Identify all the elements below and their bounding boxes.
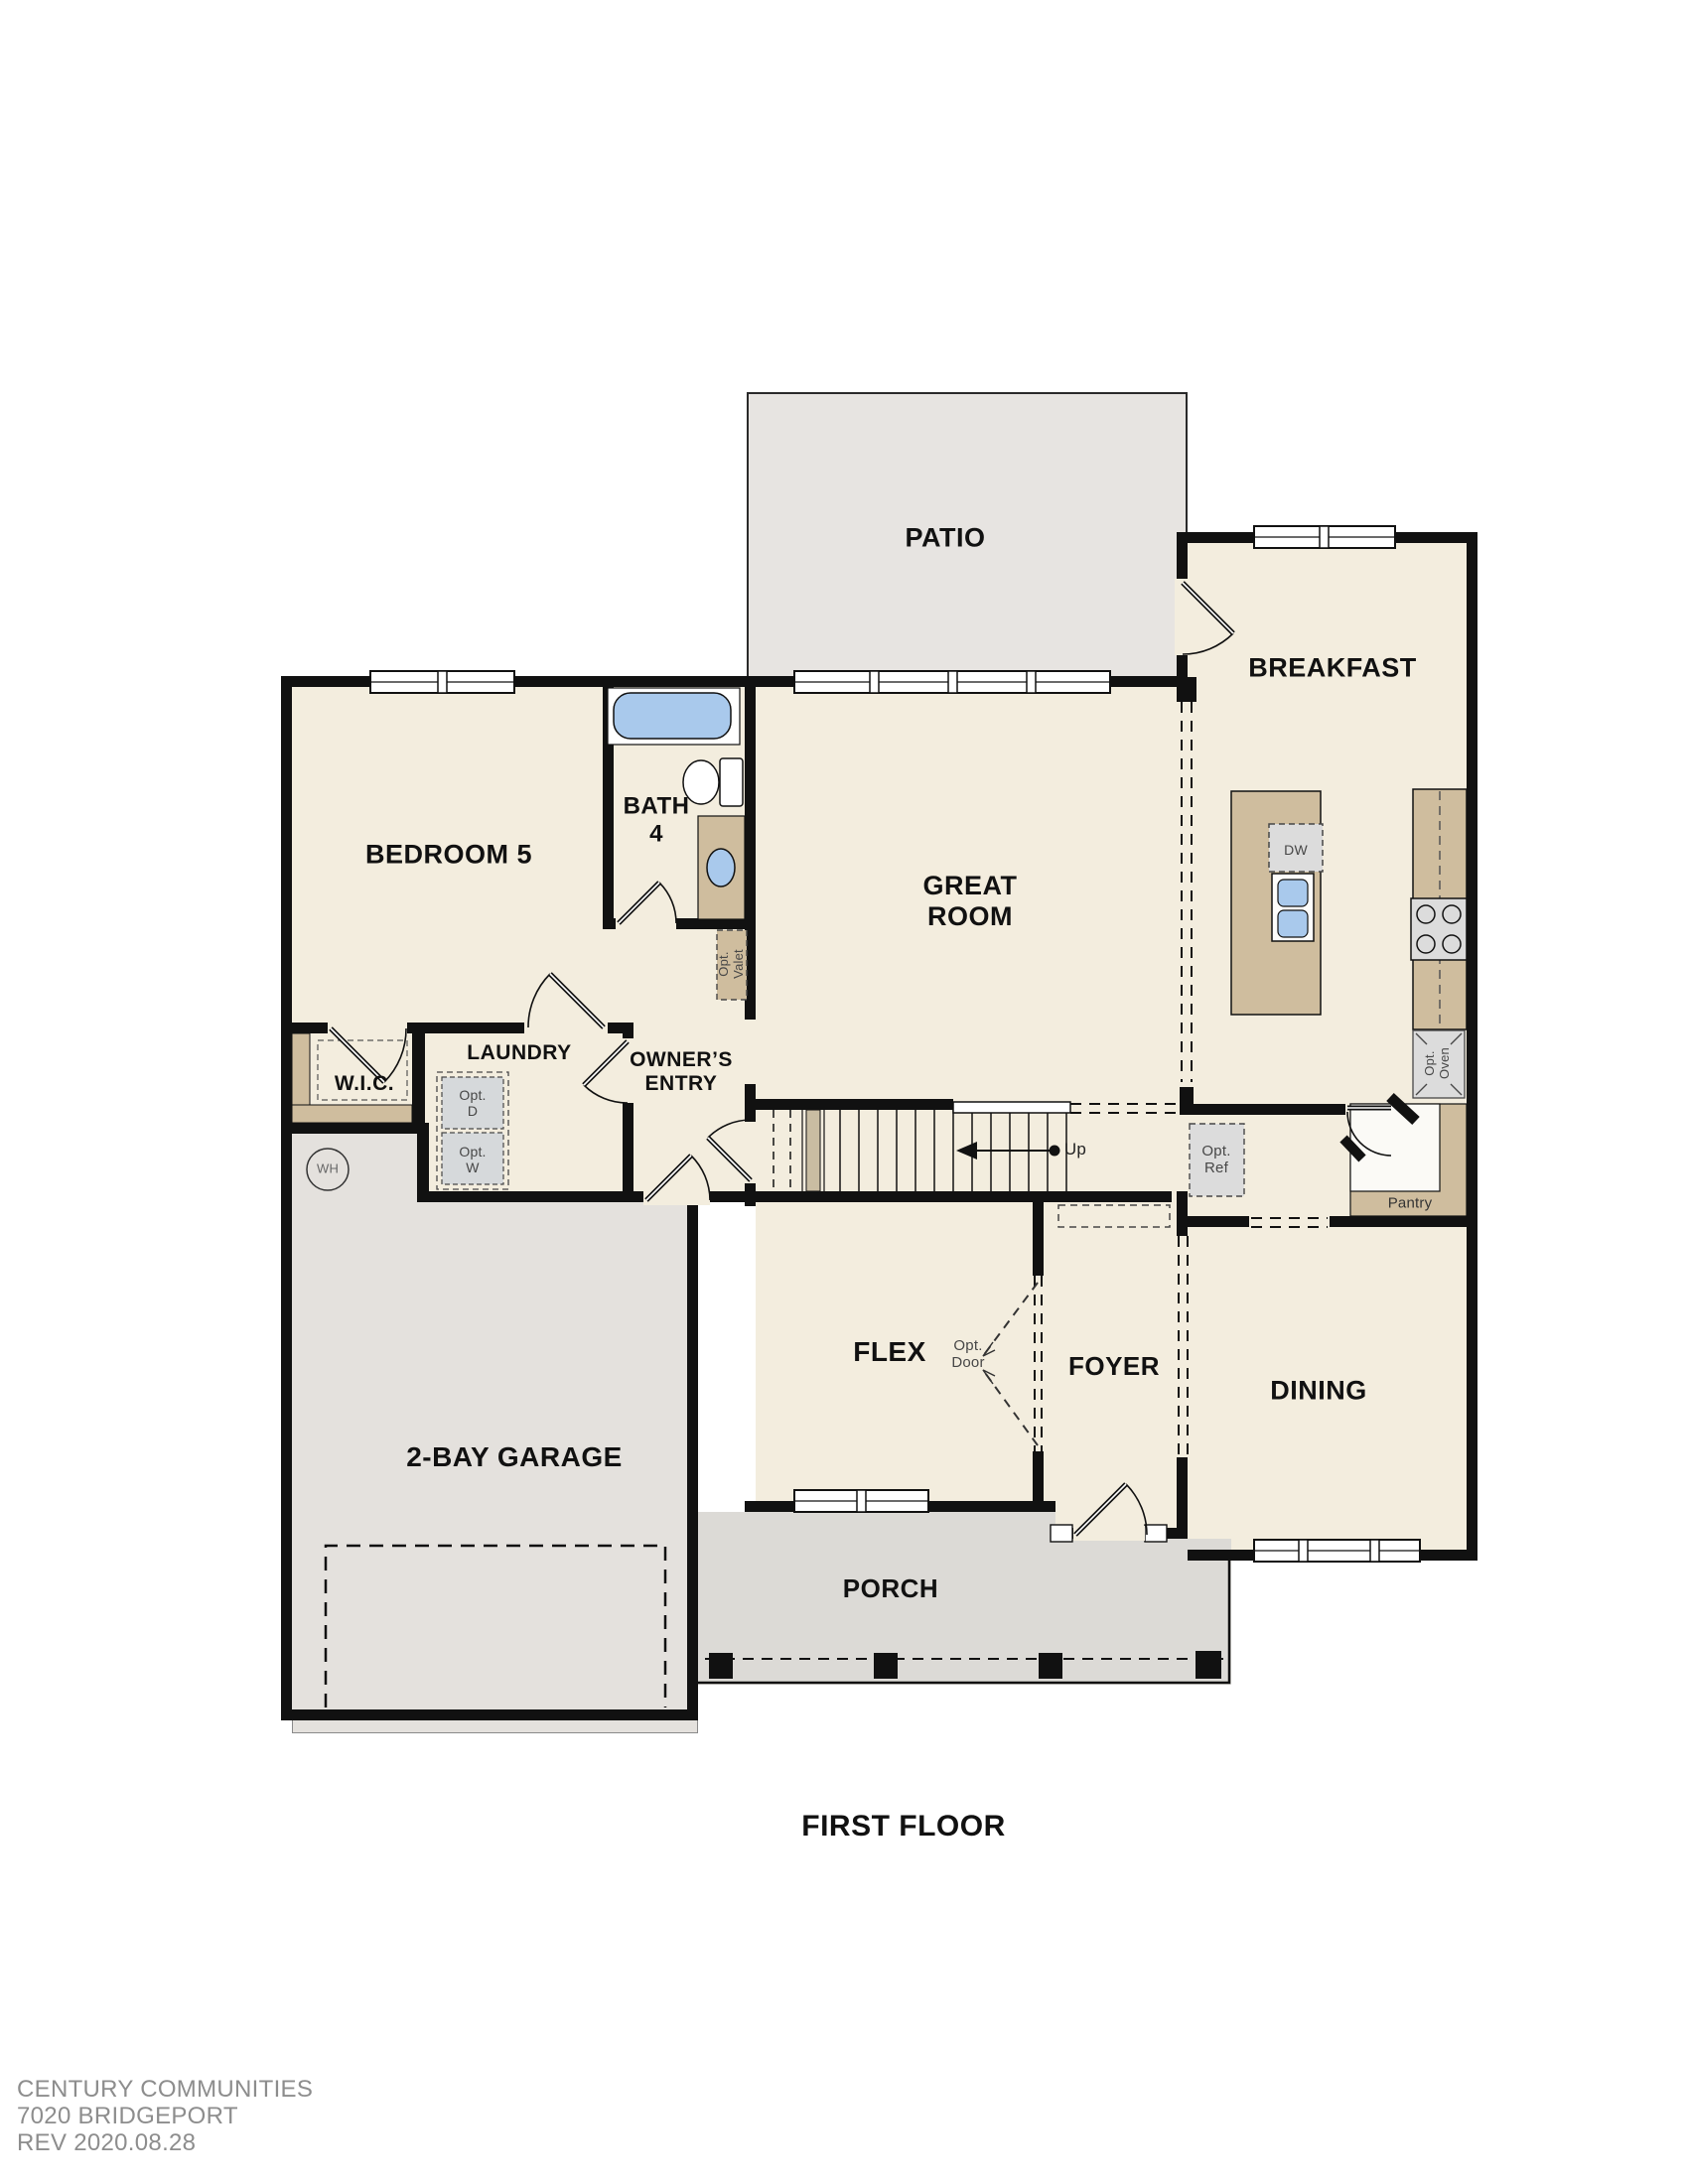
wall-wic-bottom — [281, 1123, 429, 1134]
opening-flex-right — [1031, 1276, 1046, 1451]
wall-wic-right — [412, 1033, 425, 1134]
wall-bedroom-bottom — [281, 1023, 633, 1033]
wall-rail-end — [1180, 1087, 1194, 1107]
label-opt-door: Opt. Door — [951, 1337, 984, 1372]
wall-stair-bottom — [756, 1191, 1172, 1202]
wall-entry-bottom — [417, 1191, 756, 1202]
label-up: Up — [1064, 1140, 1086, 1160]
wall-kitchen-bottom — [1180, 1104, 1345, 1115]
wall-foyer-right-bottom — [1177, 1457, 1188, 1539]
label-wh: WH — [317, 1162, 339, 1177]
label-foyer: FOYER — [1068, 1352, 1160, 1382]
wall-right — [1467, 532, 1477, 1561]
label-great-room: GREAT ROOM — [923, 871, 1018, 932]
label-pantry: Pantry — [1388, 1194, 1433, 1211]
plan-footer: CENTURY COMMUNITIES 7020 BRIDGEPORT REV … — [17, 2076, 313, 2156]
wall-breakfast-corner — [1177, 677, 1196, 702]
label-opt-d: Opt. D — [459, 1087, 486, 1119]
wall-garage-bottom — [281, 1709, 698, 1720]
wall-greatroom-left — [745, 687, 756, 1206]
label-porch: PORCH — [843, 1574, 938, 1604]
label-dw: DW — [1284, 842, 1308, 858]
label-opt-ref: Opt. Ref — [1201, 1143, 1230, 1177]
wall-bath-bottom — [603, 918, 756, 929]
wall-dining-bottom — [1188, 1550, 1477, 1561]
floorplan-page: PATIO BREAKFAST BEDROOM 5 BATH 4 GREAT R… — [0, 0, 1688, 2184]
wall-bath-left — [603, 687, 614, 929]
page-title: FIRST FLOOR — [801, 1810, 1005, 1844]
opening-greatroom-left — [743, 1020, 758, 1084]
porch-area-right — [1055, 1539, 1231, 1685]
label-wic: W.I.C. — [335, 1072, 394, 1096]
wall-garage-right — [687, 1202, 698, 1720]
wall-garage-step — [417, 1123, 429, 1202]
label-laundry: LAUNDRY — [467, 1041, 571, 1065]
garage-area-upper — [292, 1134, 429, 1202]
wall-left — [281, 676, 292, 1720]
footer-revision: REV 2020.08.28 — [17, 2129, 313, 2156]
label-breakfast: BREAKFAST — [1248, 652, 1417, 683]
label-patio: PATIO — [906, 522, 986, 553]
label-bath4: BATH 4 — [624, 792, 690, 847]
label-opt-w: Opt. W — [459, 1144, 486, 1175]
wall-top — [281, 676, 1188, 687]
wall-stair-top — [756, 1099, 953, 1110]
opening-dining-top — [1249, 1214, 1330, 1229]
footer-company: CENTURY COMMUNITIES — [17, 2076, 313, 2103]
garage-apron — [292, 1720, 698, 1733]
label-flex: FLEX — [853, 1336, 926, 1368]
wall-foyer-bottom — [1055, 1528, 1188, 1539]
label-bedroom5: BEDROOM 5 — [365, 839, 532, 870]
label-owners-entry: OWNER’S ENTRY — [630, 1048, 733, 1096]
label-garage: 2-BAY GARAGE — [406, 1441, 623, 1473]
label-opt-oven: Opt. Oven — [1423, 1047, 1453, 1079]
wall-flex-bottom — [745, 1501, 1055, 1512]
wall-foyer-right-top — [1177, 1191, 1188, 1236]
label-dining: DINING — [1270, 1375, 1367, 1406]
footer-plan: 7020 BRIDGEPORT — [17, 2103, 313, 2129]
wall-breakfast-top — [1177, 532, 1477, 543]
label-opt-valet: Opt. Valet — [717, 949, 747, 979]
